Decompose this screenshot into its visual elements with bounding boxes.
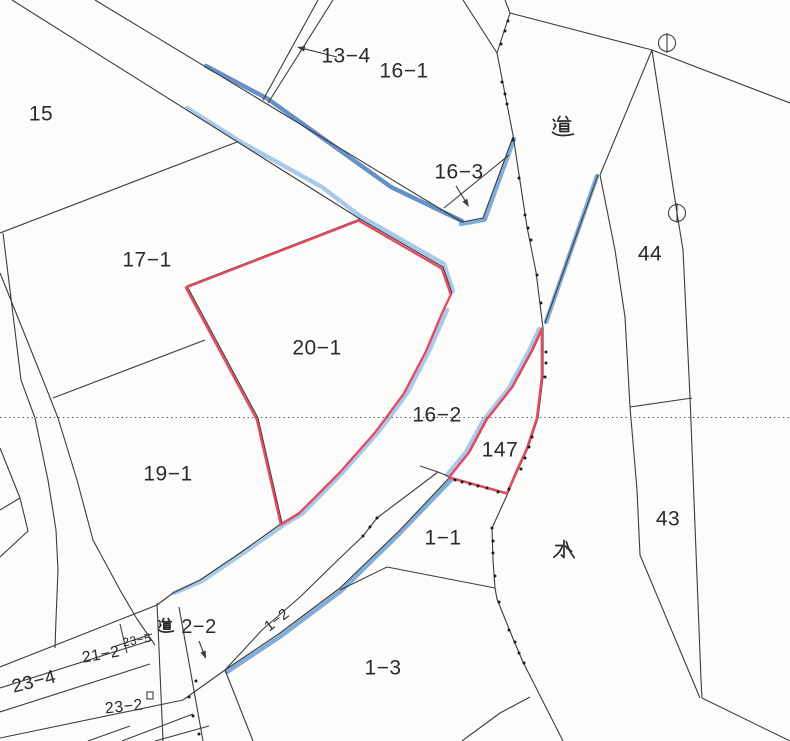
road-label-top-stroke (553, 120, 555, 122)
road-band-edges (12, 0, 462, 293)
road-edge-blue-16-3-east (485, 139, 514, 219)
road-edge-blue-southeast-lower (227, 480, 451, 672)
survey-dot-strip-1-2 (369, 526, 372, 529)
survey-dot-parcel-2-2-south (188, 696, 191, 699)
parcel-23-2: 23−2 (104, 697, 144, 718)
survey-dot-parcel-147-edge (544, 376, 547, 379)
parcel-147: 147 (482, 439, 519, 462)
boundary-lines (0, 0, 790, 741)
parcel-20-1-boundary (187, 219, 452, 523)
parcel-44-43-boundaries (600, 50, 790, 741)
southwest-corner-parcel-strips (0, 593, 209, 741)
survey-dot-water-west-boundary (514, 641, 517, 644)
road-label-top-stroke (553, 132, 574, 135)
parcel-2-2: 2−2 (181, 616, 216, 638)
parcel-labels: 1513−416−116−34417−120−116−214719−1431−1… (10, 45, 680, 718)
survey-dot-road-west-boundary (504, 30, 507, 33)
road-southeast-edge-and-strip (183, 466, 450, 741)
survey-dot-water-west-boundary (518, 652, 521, 655)
parcel-13-4: 13−4 (321, 45, 370, 68)
survey-dot-road-west-boundary (524, 214, 527, 217)
road-label-top-stroke (554, 124, 556, 129)
road-area-north-boundaries (463, 0, 652, 328)
survey-dot-water-west-boundary (498, 601, 501, 604)
road-highlight-blue (174, 66, 597, 672)
arrow-16-3-head (462, 199, 469, 207)
survey-dot-strip-1-2 (362, 535, 365, 538)
parcel-23-5: 23−5 (121, 631, 152, 650)
survey-dot-water-west-boundary (492, 540, 495, 543)
survey-dot-road-west-boundary (506, 103, 509, 106)
parcel-outlines-red (186, 221, 542, 525)
survey-dot-water-west-boundary (523, 662, 526, 665)
parcel-16-2: 16−2 (412, 404, 461, 427)
survey-dot-parcel-147-edge (531, 436, 534, 439)
parcel-16-3: 16−3 (434, 161, 483, 184)
survey-dot-parcel-2-2-south (198, 733, 201, 736)
survey-dot-parcel-147-edge (545, 351, 548, 354)
survey-dot-water-west-boundary (492, 552, 495, 555)
water-label (554, 541, 574, 558)
road-label-top-stroke (558, 117, 560, 120)
survey-dot-parcel-2-2-south (195, 680, 198, 683)
survey-dot-road-west-boundary (500, 43, 503, 46)
survey-dot-road-west-boundary (518, 177, 521, 180)
road-label-top-stroke (566, 117, 568, 120)
road-label-bottom (159, 619, 174, 632)
road-label-bottom-stroke (159, 621, 160, 622)
parcel-17-1: 17−1 (122, 249, 171, 272)
survey-dot-road-west-boundary (530, 239, 533, 242)
road-label-bottom-stroke (163, 619, 164, 621)
survey-dot-water-west-boundary (491, 527, 494, 530)
parcel-44: 44 (638, 243, 662, 266)
building-square-marker (147, 692, 153, 699)
survey-dot-parcel-147-edge (508, 488, 511, 491)
survey-dot-parcel-147-edge (461, 481, 464, 484)
survey-dot-road-west-boundary (527, 227, 530, 230)
arrow-2-2-head (200, 651, 206, 659)
survey-dot-parcel-147-edge (520, 468, 523, 471)
survey-dot-parcel-147-edge (524, 457, 527, 460)
arrow-2-2-line (199, 641, 203, 652)
road-label-bottom-stroke (159, 624, 161, 628)
parcel-1-3: 1−3 (364, 657, 401, 680)
survey-dot-parcel-147-edge (477, 485, 480, 488)
parcel-43: 43 (656, 508, 680, 531)
survey-dot-parcel-147-edge (545, 362, 548, 365)
survey-dot-road-west-boundary (501, 81, 504, 84)
survey-dot-parcel-147-edge (486, 487, 489, 490)
road-east-edge-upper (545, 175, 598, 323)
parcel-16-1: 16−1 (379, 60, 428, 83)
parcel-19-1: 19−1 (143, 463, 192, 486)
parcel-1-1: 1−1 (424, 527, 461, 550)
survey-dot-parcel-147-edge (528, 446, 531, 449)
survey-dot-water-west-boundary (508, 629, 511, 632)
parcel-21-2: 21−2 (81, 643, 121, 666)
road-label-bottom-stroke (164, 624, 170, 630)
survey-dot-parcel-147-edge (469, 483, 472, 486)
west-parcel-boundaries (0, 142, 237, 648)
survey-dot-water-west-boundary (494, 575, 497, 578)
survey-dot-parcel-147-edge (454, 479, 457, 482)
survey-point-dots (188, 20, 548, 736)
parcel-23-4: 23−4 (10, 666, 59, 697)
survey-dot-parcel-2-2-south (192, 715, 195, 718)
road-label-top-stroke (560, 124, 569, 132)
cadastral-map-sheet: 1513−416−116−34417−120−116−214719−1431−1… (0, 0, 790, 741)
survey-dot-road-west-boundary (536, 274, 539, 277)
road-label-bottom-stroke (168, 619, 169, 621)
arrow-16-3-line (456, 186, 465, 200)
survey-dot-strip-1-2 (376, 517, 379, 520)
road-west-edge-lower (173, 523, 282, 593)
survey-dot-road-west-boundary (540, 302, 543, 305)
parcel-15: 15 (29, 103, 53, 126)
parcel-20-1-red-outline (186, 221, 451, 525)
survey-dot-road-west-boundary (507, 20, 510, 23)
road-label-top (553, 117, 574, 136)
survey-dot-road-west-boundary (504, 93, 507, 96)
parcel-20-1: 20−1 (292, 337, 341, 360)
survey-dot-parcel-147-edge (497, 491, 500, 494)
survey-dot-road-west-boundary (512, 139, 515, 142)
